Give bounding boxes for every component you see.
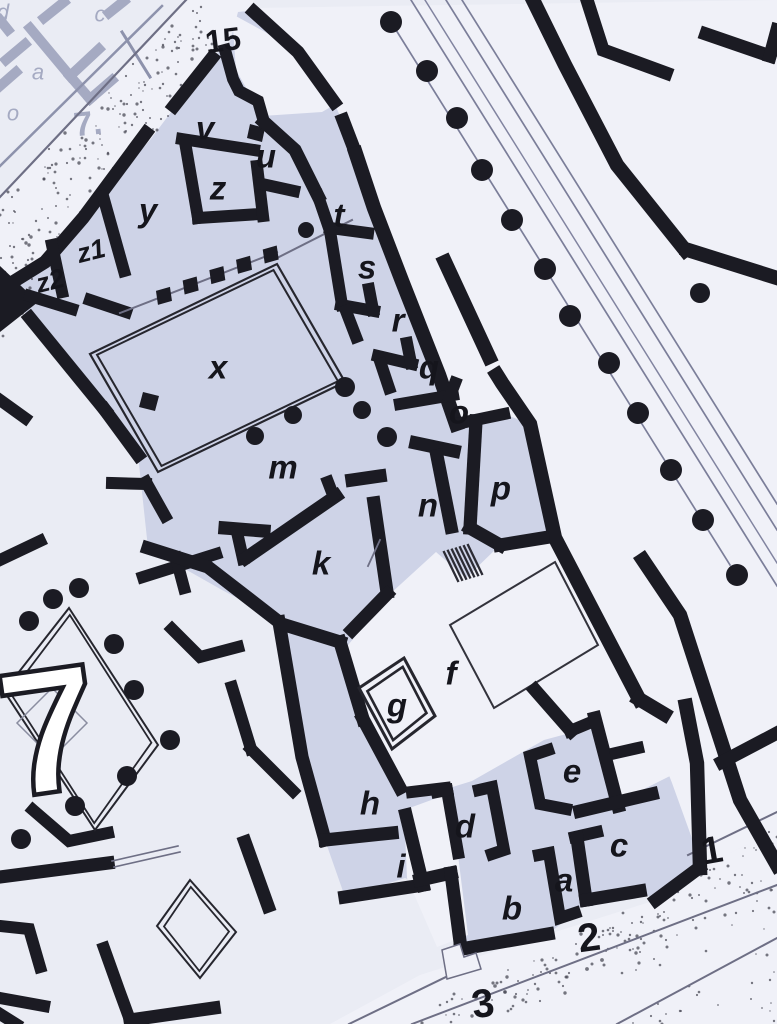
svg-text:g: g [386, 687, 407, 724]
svg-text:u: u [256, 138, 276, 175]
svg-text:o: o [7, 101, 19, 126]
svg-text:q: q [419, 349, 439, 386]
svg-text:x: x [207, 349, 229, 386]
svg-text:z: z [209, 170, 227, 207]
svg-text:k: k [312, 545, 332, 582]
svg-text:15: 15 [203, 20, 243, 60]
svg-text:y: y [137, 192, 159, 229]
svg-text:d: d [0, 0, 10, 25]
svg-text:s: s [358, 249, 376, 286]
svg-text:v: v [196, 110, 216, 147]
svg-text:d: d [455, 808, 476, 845]
svg-text:n: n [418, 487, 438, 524]
svg-text:b: b [502, 890, 522, 927]
svg-text:a: a [32, 60, 44, 85]
svg-text:7.: 7. [72, 104, 104, 145]
svg-text:p: p [490, 470, 511, 507]
svg-text:e: e [563, 753, 581, 790]
svg-text:a: a [555, 862, 573, 899]
svg-text:h: h [360, 785, 380, 822]
svg-text:i: i [396, 848, 406, 885]
svg-text:c: c [95, 2, 106, 27]
svg-text:o: o [449, 394, 469, 431]
svg-text:c: c [610, 827, 628, 864]
svg-text:m: m [268, 449, 297, 486]
svg-text:r: r [392, 302, 407, 339]
